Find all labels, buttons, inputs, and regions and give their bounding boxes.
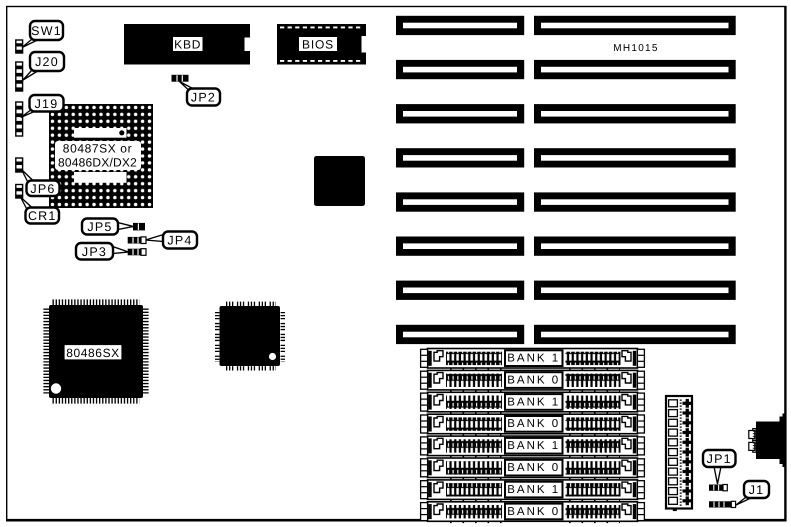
svg-text:JP4: JP4 [167, 234, 192, 248]
svg-text:BANK 1: BANK 1 [507, 396, 560, 408]
svg-text:SW1: SW1 [31, 24, 62, 38]
svg-text:BANK 0: BANK 0 [507, 506, 560, 518]
svg-text:KBD: KBD [174, 38, 201, 52]
svg-text:BIOS: BIOS [302, 38, 334, 52]
svg-text:BANK 0: BANK 0 [507, 418, 560, 430]
svg-text:J19: J19 [35, 97, 59, 111]
svg-text:JP1: JP1 [707, 452, 732, 466]
svg-text:80486DX/DX2: 80486DX/DX2 [58, 156, 137, 170]
svg-text:J20: J20 [35, 55, 59, 69]
svg-text:J1: J1 [749, 483, 765, 497]
svg-text:CR1: CR1 [28, 209, 57, 223]
svg-text:BANK 0: BANK 0 [507, 462, 560, 474]
svg-text:80486SX: 80486SX [66, 346, 120, 360]
svg-text:MH1015: MH1015 [613, 43, 659, 54]
svg-text:JP2: JP2 [191, 91, 216, 105]
svg-text:BANK 1: BANK 1 [507, 353, 560, 365]
svg-text:80487SX or: 80487SX or [63, 142, 132, 156]
svg-text:BANK 1: BANK 1 [507, 440, 560, 452]
svg-text:JP5: JP5 [87, 220, 112, 234]
svg-text:BANK 1: BANK 1 [507, 484, 560, 496]
svg-text:BANK 0: BANK 0 [507, 374, 560, 386]
svg-text:JP3: JP3 [82, 245, 107, 259]
svg-text:JP6: JP6 [30, 182, 55, 196]
